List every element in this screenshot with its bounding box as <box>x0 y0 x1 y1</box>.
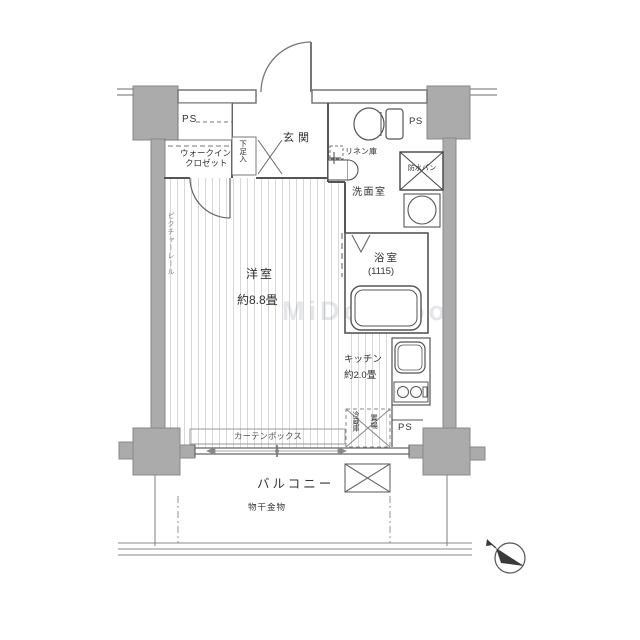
wall-top-east <box>312 90 427 103</box>
entrance-label: 玄関 <box>283 132 313 145</box>
waterproof-pan-label: 防水パン <box>402 165 442 173</box>
pillar-bottom-right-arm-west <box>409 445 423 458</box>
kitchen-label: キッチン <box>344 355 382 366</box>
main-room-size-label: 約8.8畳 <box>237 294 278 308</box>
kitchen-size-label: 約2.0畳 <box>344 371 376 382</box>
walk-in-closet-line2: クロゼット <box>180 159 231 169</box>
balcony-label: バルコニー <box>257 477 334 491</box>
wall-top-west <box>178 90 256 103</box>
shoe-cabinet-label: 下足入 <box>238 140 247 163</box>
pillar-bottom-left <box>133 428 180 475</box>
bathroom-label: 浴室 <box>374 252 399 264</box>
compass-icon <box>486 539 525 573</box>
picture-rail-label: ピクチャーレール <box>166 212 174 276</box>
pillar-bottom-right <box>423 428 470 475</box>
wall-left <box>151 139 165 429</box>
stove-icon <box>394 382 428 402</box>
pillar-top-left <box>133 86 178 140</box>
main-room-label: 洋室 <box>246 268 274 282</box>
ps-top-right-label: PS <box>409 117 423 128</box>
pillar-bottom-left-arm-east <box>180 445 195 458</box>
washroom-label: 洗面室 <box>352 187 387 199</box>
linen-closet-label: リネン庫 <box>345 147 377 156</box>
closet-door-arc <box>190 178 230 218</box>
linen-closet-box <box>330 146 343 159</box>
refrigerator-label-col1: 冷蔵庫 <box>351 411 359 432</box>
washbasin-icon <box>328 152 358 180</box>
laundry-hardware-label: 物干金物 <box>248 503 286 513</box>
washer-drum-icon <box>404 194 440 227</box>
wall-right <box>443 138 456 429</box>
bathtub-icon <box>351 286 421 330</box>
floor-plan-canvas: MiDooRoo <box>0 0 640 640</box>
ps-bottom-right-label: PS <box>398 423 413 434</box>
pillar-bottom-right-arm-east <box>470 447 485 460</box>
floor-plan-drawing <box>0 0 640 640</box>
pillar-top-right <box>427 86 470 139</box>
bifold-door-icon <box>258 140 282 174</box>
kitchen-sink-icon <box>395 342 425 373</box>
curtain-box-label: カーテンボックス <box>234 432 302 442</box>
refrigerator-label-col2: 置場 <box>369 414 378 429</box>
walk-in-closet-label: ウォークイン クロゼット <box>180 149 231 169</box>
toilet-icon <box>354 108 403 140</box>
pillar-bottom-left-arm-west <box>119 442 133 459</box>
entrance-door-icon <box>261 42 311 92</box>
bathroom-size-label: (1115) <box>368 267 394 278</box>
hatch-box-icon <box>345 464 390 492</box>
ps-top-left-label: PS <box>182 114 197 126</box>
bathroom-folding-door-icon <box>352 235 370 252</box>
